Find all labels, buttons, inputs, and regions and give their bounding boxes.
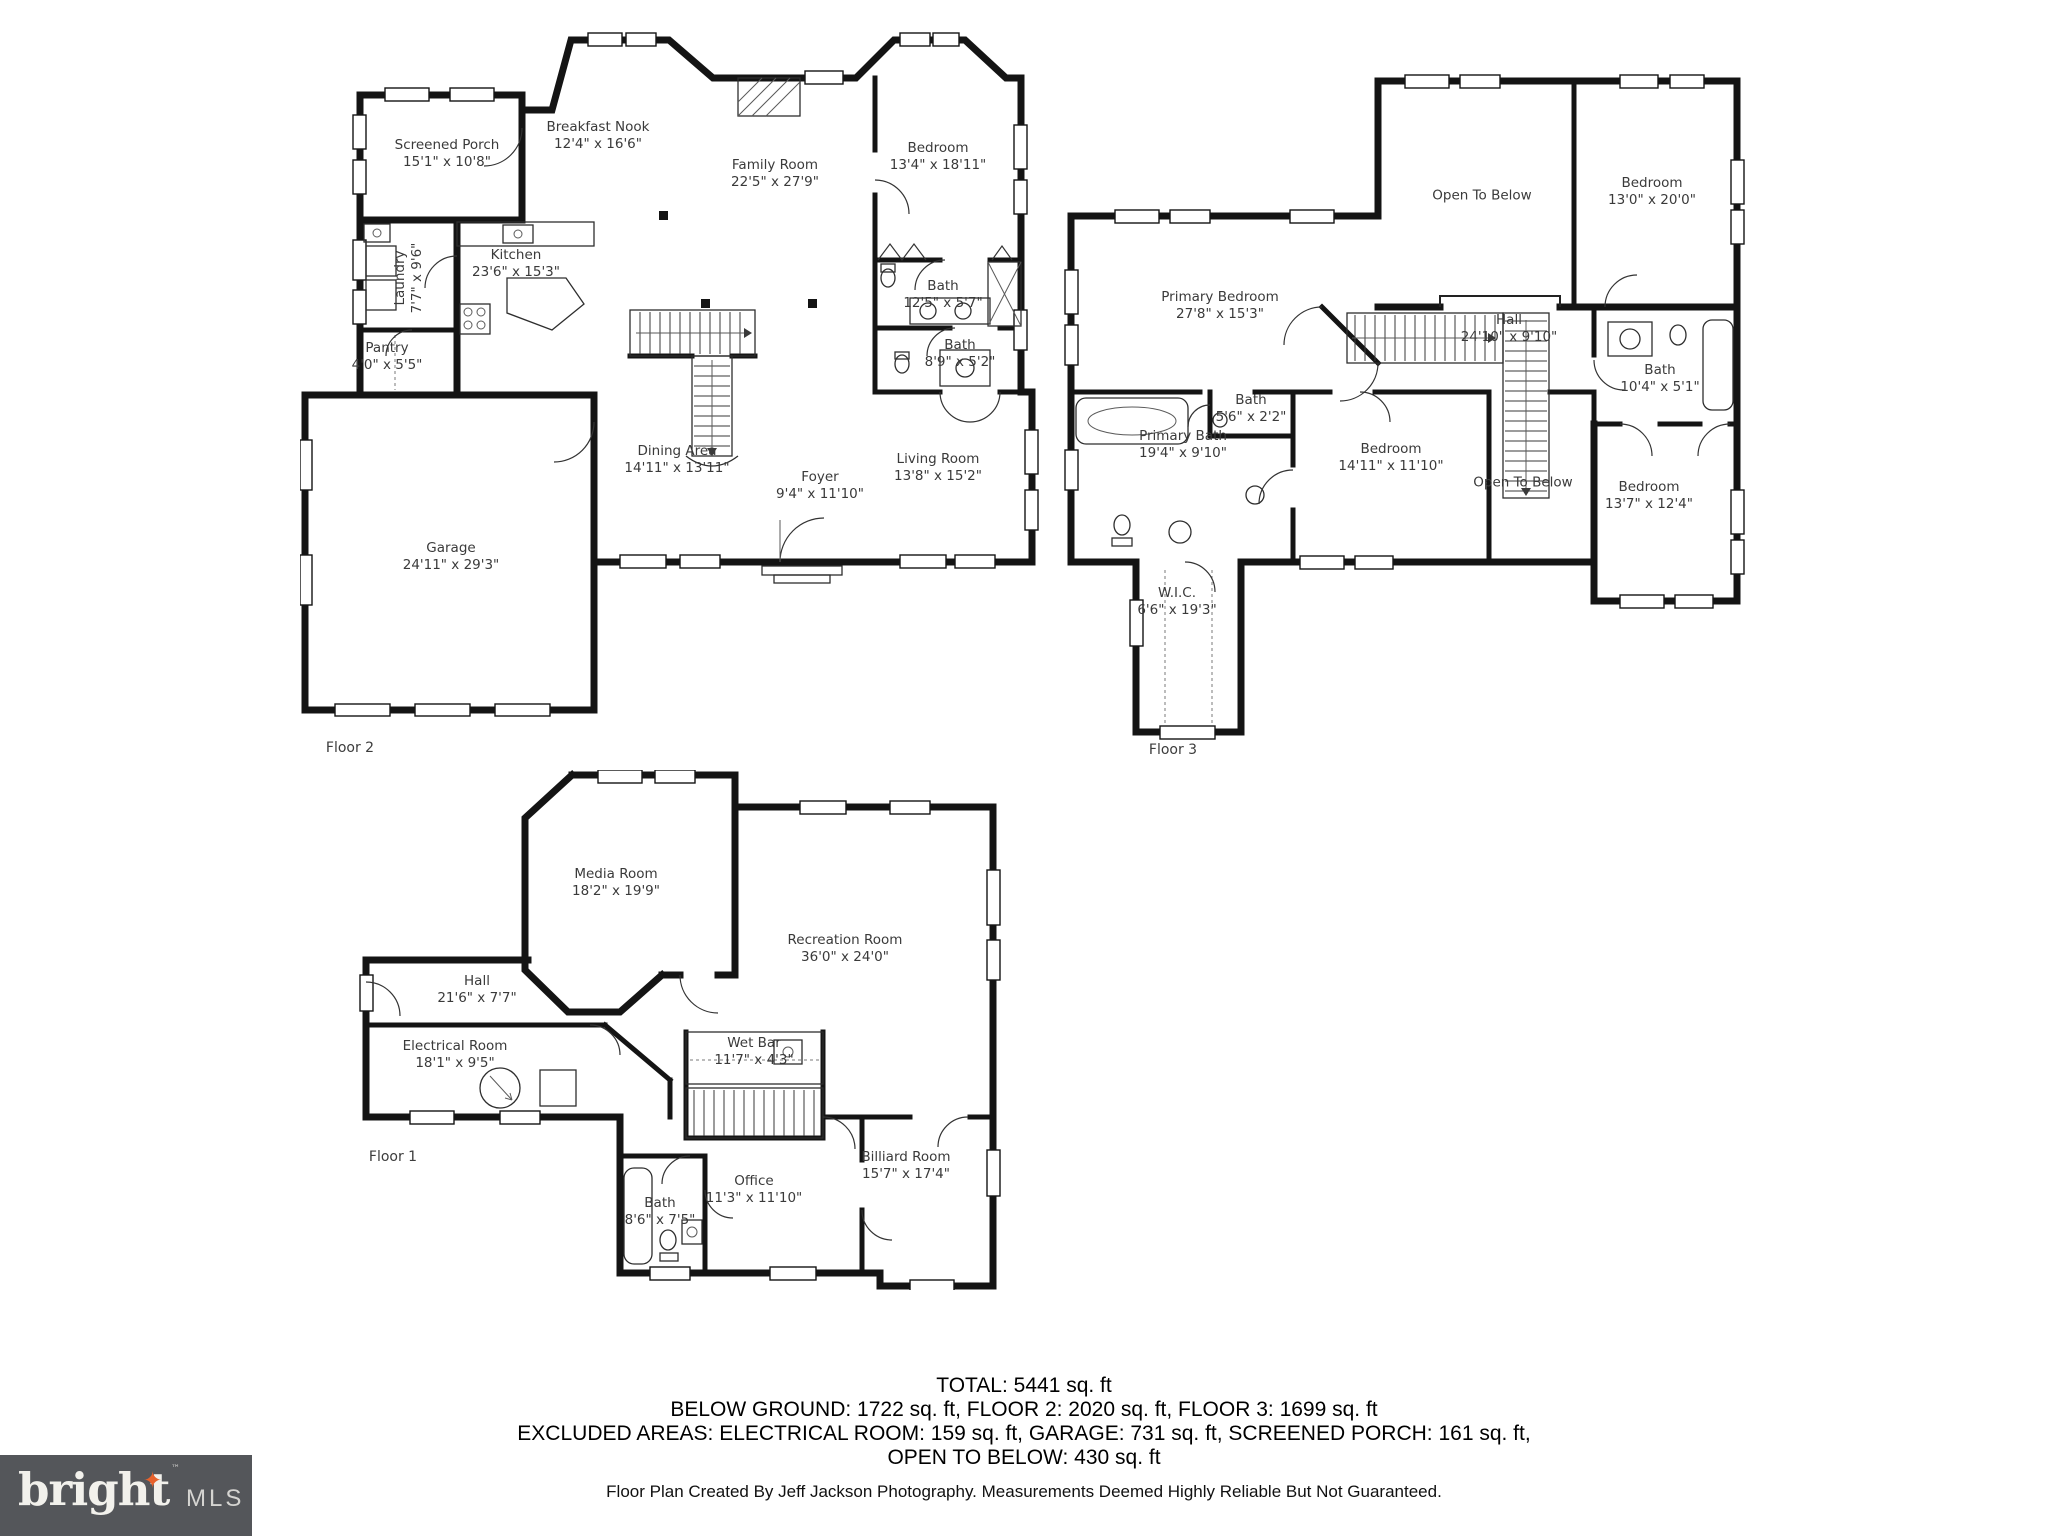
room-label-wet-bar: Wet Bar 11'7" x 4'3" (714, 1035, 793, 1069)
room-label-bath-f3-a: Bath 10'4" x 5'1" (1620, 362, 1699, 396)
room-label-bath-f1: Bath 8'6" x 7'5" (625, 1195, 696, 1229)
room-label-foyer: Foyer 9'4" x 11'10" (776, 469, 864, 503)
floor2-plan-drawing (300, 10, 1060, 760)
room-label-open-to-below-1: Open To Below (1432, 188, 1531, 205)
room-label-dining-area: Dining Area 14'11" x 13'11" (624, 443, 729, 477)
room-dims: 8'9" x 5'2" (925, 354, 996, 371)
room-dims: 7'7" x 9'6" (409, 243, 426, 314)
room-name: Bath (1620, 362, 1699, 379)
floor-plan-page: Screened Porch 15'1" x 10'8" Breakfast N… (0, 0, 2048, 1536)
room-label-bath-f2-b: Bath 8'9" x 5'2" (925, 337, 996, 371)
room-name: Bedroom (1338, 441, 1443, 458)
room-dims: 27'8" x 15'3" (1161, 306, 1279, 323)
room-dims: 15'1" x 10'8" (395, 154, 500, 171)
room-dims: 24'10" x 9'10" (1461, 329, 1558, 346)
room-dims: 5'6" x 2'2" (1216, 409, 1287, 426)
star-icon: ✦ (143, 1468, 162, 1494)
room-name: Bath (1216, 392, 1287, 409)
room-dims: 13'0" x 20'0" (1608, 192, 1696, 209)
room-dims: 14'11" x 11'10" (1338, 458, 1443, 475)
room-label-living-room: Living Room 13'8" x 15'2" (894, 451, 982, 485)
floor1-caption: Floor 1 (369, 1149, 417, 1165)
room-dims: 12'5" x 5'7" (903, 295, 982, 312)
room-label-kitchen: Kitchen 23'6" x 15'3" (472, 247, 560, 281)
room-name: Garage (403, 540, 500, 557)
room-label-screened-porch: Screened Porch 15'1" x 10'8" (395, 137, 500, 171)
room-label-primary-bedroom: Primary Bedroom 27'8" x 15'3" (1161, 289, 1279, 323)
room-name: Hall (437, 973, 516, 990)
room-label-billiard-room: Billiard Room 15'7" x 17'4" (861, 1149, 950, 1183)
room-label-bath-f3-b: Bath 5'6" x 2'2" (1216, 392, 1287, 426)
room-label-media-room: Media Room 18'2" x 19'9" (572, 866, 660, 900)
room-name: Screened Porch (395, 137, 500, 154)
room-name: Open To Below (1432, 188, 1531, 205)
room-dims: 15'7" x 17'4" (861, 1166, 950, 1183)
room-label-breakfast-nook: Breakfast Nook 12'4" x 16'6" (547, 119, 650, 153)
room-dims: 10'4" x 5'1" (1620, 379, 1699, 396)
room-label-bedroom-f2: Bedroom 13'4" x 18'11" (890, 140, 987, 174)
room-dims: 6'6" x 19'3" (1137, 602, 1216, 619)
summary-total: TOTAL: 5441 sq. ft (0, 1374, 2048, 1398)
room-label-electrical-room: Electrical Room 18'1" x 9'5" (403, 1038, 508, 1072)
room-label-pantry: Pantry 4'0" x 5'5" (352, 340, 423, 374)
room-dims: 18'2" x 19'9" (572, 883, 660, 900)
room-label-hall-f1: Hall 21'6" x 7'7" (437, 973, 516, 1007)
room-label-bedroom-f3-a: Bedroom 13'0" x 20'0" (1608, 175, 1696, 209)
room-name: Bath (925, 337, 996, 354)
room-dims: 11'3" x 11'10" (706, 1190, 803, 1207)
room-dims: 36'0" x 24'0" (788, 949, 903, 966)
room-name: Kitchen (472, 247, 560, 264)
summary-open-to-below: OPEN TO BELOW: 430 sq. ft (0, 1446, 2048, 1470)
room-name: Bedroom (1605, 479, 1693, 496)
fireplace-icon (738, 78, 800, 116)
room-dims: 13'4" x 18'11" (890, 157, 987, 174)
room-label-laundry: Laundry 7'7" x 9'6" (392, 243, 426, 314)
room-name: Office (706, 1173, 803, 1190)
room-name: Bath (903, 278, 982, 295)
room-dims: 19'4" x 9'10" (1139, 445, 1227, 462)
room-dims: 24'11" x 29'3" (403, 557, 500, 574)
floor2-posts (659, 211, 817, 308)
floor3-caption: Floor 3 (1149, 742, 1197, 758)
credit-line: Floor Plan Created By Jeff Jackson Photo… (0, 1482, 2048, 1502)
room-dims: 4'0" x 5'5" (352, 357, 423, 374)
room-name: Dining Area (624, 443, 729, 460)
room-label-office: Office 11'3" x 11'10" (706, 1173, 803, 1207)
logo-mls-text: MLS (186, 1485, 244, 1513)
room-label-bedroom-f3-c: Bedroom 13'7" x 12'4" (1605, 479, 1693, 513)
room-dims: 22'5" x 27'9" (731, 174, 819, 191)
room-dims: 13'8" x 15'2" (894, 468, 982, 485)
floor1-electrical-fixtures (480, 1068, 576, 1108)
room-label-bath-f2-a: Bath 12'5" x 5'7" (903, 278, 982, 312)
room-dims: 21'6" x 7'7" (437, 990, 516, 1007)
room-dims: 14'11" x 13'11" (624, 460, 729, 477)
room-name: Recreation Room (788, 932, 903, 949)
room-dims: 23'6" x 15'3" (472, 264, 560, 281)
room-dims: 11'7" x 4'3" (714, 1052, 793, 1069)
bright-mls-logo: bright ✦ ™ MLS (0, 1455, 252, 1536)
room-name: Primary Bedroom (1161, 289, 1279, 306)
room-label-open-to-below-2: Open To Below (1473, 475, 1572, 492)
room-name: Bedroom (890, 140, 987, 157)
floor2-entry-stoop (762, 566, 842, 583)
floor2-windows (300, 33, 1038, 716)
room-label-wic: W.I.C. 6'6" x 19'3" (1137, 585, 1216, 619)
room-name: Foyer (776, 469, 864, 486)
room-name: Wet Bar (714, 1035, 793, 1052)
room-name: Primary Bath (1139, 428, 1227, 445)
room-label-bedroom-f3-b: Bedroom 14'11" x 11'10" (1338, 441, 1443, 475)
room-label-hall-f3: Hall 24'10" x 9'10" (1461, 312, 1558, 346)
room-dims: 9'4" x 11'10" (776, 486, 864, 503)
room-name: Open To Below (1473, 475, 1572, 492)
room-label-family-room: Family Room 22'5" x 27'9" (731, 157, 819, 191)
room-name: Billiard Room (861, 1149, 950, 1166)
summary-floors: BELOW GROUND: 1722 sq. ft, FLOOR 2: 2020… (0, 1398, 2048, 1422)
room-dims: 12'4" x 16'6" (547, 136, 650, 153)
floor2-doors (386, 128, 1012, 562)
area-summary: TOTAL: 5441 sq. ft BELOW GROUND: 1722 sq… (0, 1374, 2048, 1470)
room-label-recreation-room: Recreation Room 36'0" x 24'0" (788, 932, 903, 966)
summary-excluded: EXCLUDED AREAS: ELECTRICAL ROOM: 159 sq.… (0, 1422, 2048, 1446)
room-name: Bedroom (1608, 175, 1696, 192)
room-dims: 18'1" x 9'5" (403, 1055, 508, 1072)
floor2-caption: Floor 2 (326, 740, 374, 756)
floor1-stairs-icon (686, 1088, 823, 1138)
room-name: Laundry (392, 243, 409, 314)
room-name: Living Room (894, 451, 982, 468)
room-name: Media Room (572, 866, 660, 883)
room-name: W.I.C. (1137, 585, 1216, 602)
room-label-garage: Garage 24'11" x 29'3" (403, 540, 500, 574)
room-dims: 13'7" x 12'4" (1605, 496, 1693, 513)
room-name: Breakfast Nook (547, 119, 650, 136)
room-name: Hall (1461, 312, 1558, 329)
room-name: Bath (625, 1195, 696, 1212)
room-name: Family Room (731, 157, 819, 174)
room-dims: 8'6" x 7'5" (625, 1212, 696, 1229)
room-name: Electrical Room (403, 1038, 508, 1055)
trademark-symbol: ™ (171, 1464, 180, 1474)
room-name: Pantry (352, 340, 423, 357)
room-label-primary-bath: Primary Bath 19'4" x 9'10" (1139, 428, 1227, 462)
